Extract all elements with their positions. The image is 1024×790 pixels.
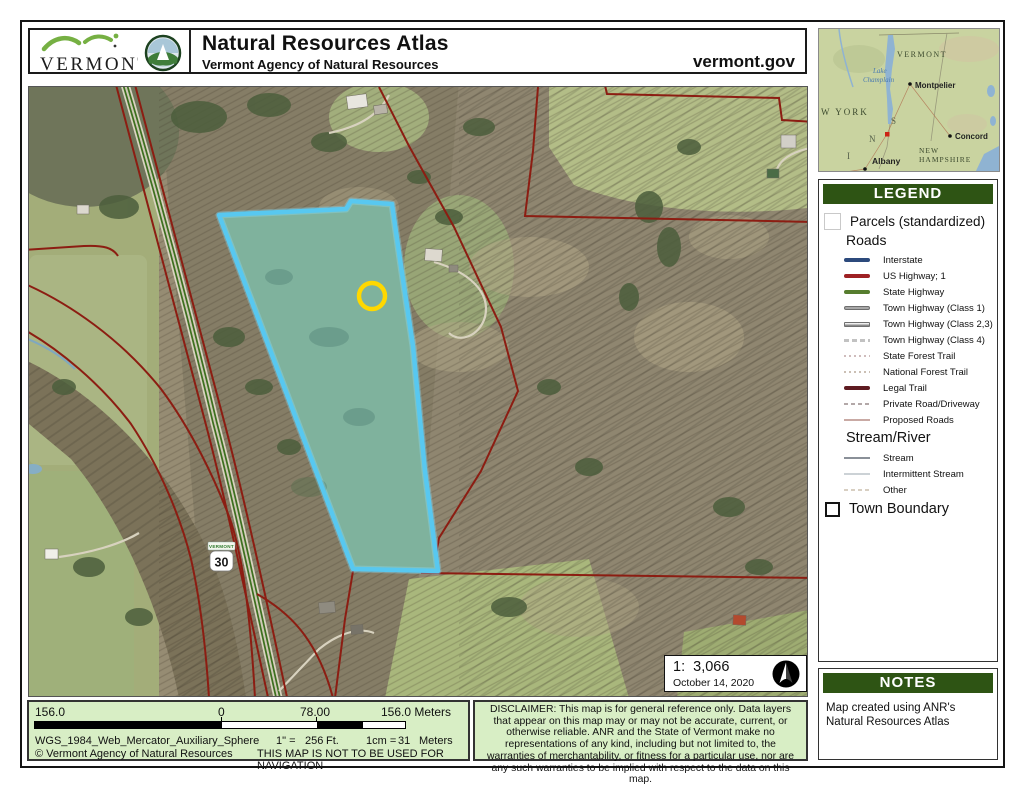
national-forest-trail-swatch: [844, 371, 870, 373]
projection-label: WGS_1984_Web_Mercator_Auxiliary_Sphere: [35, 735, 259, 747]
concord-dot: [948, 134, 952, 138]
legend-item-interstate: Interstate: [823, 252, 993, 268]
cm-scale-label: 1cm =: [366, 735, 396, 747]
anr-logo: [144, 34, 182, 72]
notes-title: NOTES: [823, 673, 993, 693]
disclaimer-panel: DISCLAIMER: This map is for general refe…: [473, 700, 808, 761]
stream-swatch: [844, 457, 870, 459]
legend-item-town-highway-1: Town Highway (Class 1): [823, 300, 993, 316]
scalebar-panel: 156.0 0 78.00 156.0 Meters WGS_1984_Web_…: [27, 700, 470, 761]
legend-item-national-forest-trail: National Forest Trail: [823, 364, 993, 380]
legend-item-intermittent-stream: Intermittent Stream: [823, 466, 993, 482]
inset-montpelier-label: Montpelier: [915, 81, 955, 90]
scalebar-label-left: 156.0: [35, 705, 65, 719]
inch-scale-unit: Ft.: [326, 735, 339, 747]
header-divider: [189, 30, 191, 72]
route-shield-state-label: VERMONT: [209, 544, 234, 549]
inch-scale-label: 1" =: [276, 735, 296, 747]
legend-item-state-highway: State Highway: [823, 284, 993, 300]
legend-item-stream: Stream: [823, 450, 993, 466]
notes-panel: NOTES Map created using ANR's Natural Re…: [818, 668, 998, 760]
atlas-map-page: VERMONT Natural Resources Atlas Vermont …: [0, 0, 1024, 790]
legend-item-state-forest-trail: State Forest Trail: [823, 348, 993, 364]
inset-range-letter-0: S: [891, 116, 896, 126]
header: VERMONT Natural Resources Atlas Vermont …: [28, 28, 807, 74]
north-arrow-icon: [771, 659, 801, 689]
legend-item-private-road: Private Road/Driveway: [823, 396, 993, 412]
legend-stream-heading: Stream/River: [846, 430, 993, 446]
inset-nh-label-1: NEW: [919, 146, 939, 155]
us-highway-swatch: [844, 274, 870, 278]
aerial-imagery: VERMONT 30: [29, 87, 808, 697]
inset-albany-label: Albany: [872, 156, 901, 166]
legend-item-proposed-roads: Proposed Roads: [823, 412, 993, 428]
inset-state-label: VERMONT: [897, 50, 947, 59]
legend-item-town-boundary: Town Boundary: [823, 501, 993, 517]
intermittent-stream-swatch: [844, 473, 870, 475]
town-highway-23-swatch: [844, 322, 870, 327]
state-forest-trail-swatch: [844, 355, 870, 357]
albany-dot: [863, 167, 867, 171]
cm-scale-value: 31: [398, 735, 410, 747]
legend-roads-heading: Roads: [846, 232, 993, 248]
montpelier-dot: [908, 82, 912, 86]
legend-item-parcels: Parcels (standardized): [823, 213, 993, 230]
route-30-shield: VERMONT 30: [208, 542, 235, 571]
interstate-swatch: [844, 258, 870, 262]
town-highway-1-swatch: [844, 306, 870, 310]
cm-scale-unit: Meters: [419, 735, 453, 747]
inset-lake-label-1: Lake: [872, 67, 887, 75]
map-date: October 14, 2020: [673, 677, 754, 689]
scale-bar: [34, 721, 406, 729]
town-highway-4-swatch: [844, 339, 870, 342]
state-highway-swatch: [844, 290, 870, 294]
private-road-swatch: [844, 403, 870, 405]
locator-inset-map: VERMONT Lake Champlain Montpelier W YORK…: [818, 28, 1000, 172]
navigation-warning: THIS MAP IS NOT TO BE USED FOR NAVIGATIO…: [257, 748, 468, 772]
route-shield-number: 30: [215, 556, 229, 570]
location-marker-dot: [885, 132, 890, 137]
other-stream-swatch: [844, 489, 870, 491]
map-scale-ratio: 1: 3,066: [673, 659, 729, 675]
inset-nh-label-2: HAMPSHIRE: [919, 155, 971, 164]
vermont-logo-text: VERMONT: [40, 54, 138, 74]
inset-concord-label: Concord: [955, 132, 988, 141]
legend-item-other-stream: Other: [823, 482, 993, 498]
legend-title: LEGEND: [823, 184, 993, 204]
legal-trail-swatch: [844, 386, 870, 390]
inch-scale-value: 256: [305, 735, 323, 747]
legend-item-town-highway-23: Town Highway (Class 2,3): [823, 316, 993, 332]
inset-range-letter-2: I: [847, 151, 850, 161]
locator-map-art: VERMONT Lake Champlain Montpelier W YORK…: [819, 29, 1000, 172]
legend-item-us-highway: US Highway; 1: [823, 268, 993, 284]
scale-info-box: 1: 3,066 October 14, 2020: [664, 655, 807, 692]
page-title: Natural Resources Atlas: [202, 32, 449, 56]
notes-body: Map created using ANR's Natural Resource…: [819, 697, 997, 733]
legend-item-legal-trail: Legal Trail: [823, 380, 993, 396]
parcels-swatch: [824, 213, 841, 230]
page-subtitle: Vermont Agency of Natural Resources: [202, 57, 449, 72]
inset-lake-label-2: Champlain: [863, 76, 895, 84]
vermont-logo: VERMONT: [38, 32, 138, 74]
copyright-label: © Vermont Agency of Natural Resources: [35, 748, 233, 760]
vermont-gov-text: vermont.gov: [693, 52, 795, 72]
proposed-roads-swatch: [844, 419, 870, 421]
legend-item-town-highway-4: Town Highway (Class 4): [823, 332, 993, 348]
inset-newyork-label: W YORK: [821, 107, 869, 117]
scalebar-label-right: 156.0 Meters: [381, 705, 451, 719]
legend-panel: LEGEND Parcels (standardized) Roads Inte…: [818, 179, 998, 662]
map-canvas: VERMONT 30 1: 3,066 October 14, 2020: [28, 86, 808, 697]
inset-range-letter-1: N: [869, 134, 876, 144]
town-boundary-swatch: [825, 502, 840, 517]
